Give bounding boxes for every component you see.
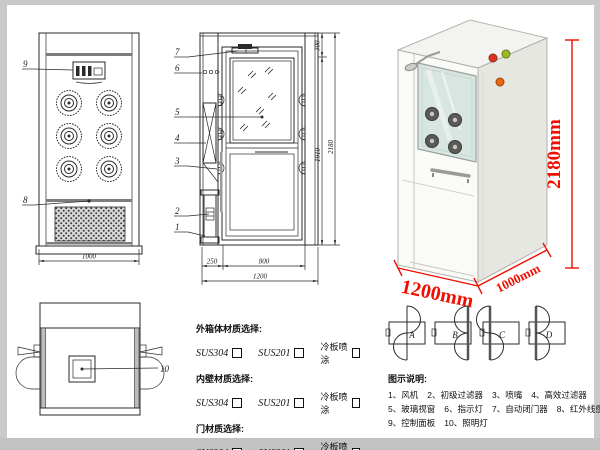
legend-item: 5、玻璃视窗 bbox=[388, 402, 435, 416]
frame-border-top bbox=[0, 0, 600, 5]
orange-button bbox=[496, 78, 504, 86]
fan-unit bbox=[201, 152, 223, 243]
door-track bbox=[220, 152, 223, 212]
glass-door-3d bbox=[418, 63, 476, 162]
door-option-a-label: A bbox=[408, 330, 415, 340]
material-option-label: SUS304 bbox=[196, 348, 228, 359]
glass-hatch-marks bbox=[238, 67, 276, 131]
material-option-label: SUS201 bbox=[258, 398, 290, 409]
glass-window bbox=[230, 58, 294, 143]
door-option-b[interactable]: B bbox=[432, 306, 471, 360]
section-callouts: 7 6 5 4 3 2 1 bbox=[174, 47, 264, 236]
return-grille bbox=[46, 199, 132, 245]
callout-4-label: 4 bbox=[175, 133, 180, 143]
callout-1-label: 1 bbox=[175, 222, 180, 232]
door-option-c[interactable]: C bbox=[477, 306, 520, 360]
vertical-dimensions: 300 1910 2180 bbox=[314, 33, 341, 245]
legend-item: 6、指示灯 bbox=[444, 402, 483, 416]
door-option-d[interactable]: D bbox=[526, 306, 565, 360]
legend-item: 9、控制面板 bbox=[388, 416, 435, 430]
nozzles-front bbox=[57, 91, 122, 182]
callout-2-label: 2 bbox=[175, 206, 180, 216]
legend-title: 图示说明: bbox=[388, 372, 588, 385]
door-option-a[interactable]: A bbox=[386, 306, 425, 360]
legend-item: 8、红外线感应器 bbox=[557, 402, 600, 416]
product-photo-3d: 2180mm 1200mm 1000mm bbox=[380, 10, 595, 310]
material-checkbox[interactable] bbox=[232, 348, 242, 358]
callout-9-label: 9 bbox=[23, 59, 28, 69]
callout-9: 9 bbox=[22, 59, 73, 70]
material-options-row: SUS304 SUS201 冷板喷涂 bbox=[196, 340, 372, 366]
control-panel bbox=[73, 62, 105, 84]
door-closer bbox=[232, 44, 258, 53]
material-section-title: 外箱体材质选择: bbox=[196, 322, 372, 335]
material-checkbox[interactable] bbox=[232, 398, 242, 408]
door-option-b-label: B bbox=[452, 330, 458, 340]
legend: 图示说明: 1、风机 2、初级过滤器 3、喷嘴 4、高效过滤器 5、玻璃视窗 6… bbox=[388, 372, 588, 430]
legend-item: 7、自动闭门器 bbox=[492, 402, 548, 416]
legend-item: 1、风机 bbox=[388, 388, 418, 402]
legend-item: 10、照明灯 bbox=[444, 416, 487, 430]
indicator-lights bbox=[203, 70, 218, 73]
top-view-drawing: 10 bbox=[10, 295, 190, 435]
material-option-label: SUS201 bbox=[258, 348, 290, 359]
callout-5-label: 5 bbox=[175, 107, 180, 117]
door-swing-options: A B C D bbox=[383, 300, 583, 366]
legend-item: 2、初级过滤器 bbox=[427, 388, 483, 402]
green-button bbox=[502, 50, 510, 58]
material-selection: 外箱体材质选择: SUS304 SUS201 冷板喷涂 内壁材质选择: SUS3… bbox=[196, 316, 372, 450]
material-options-row: SUS304 SUS201 冷板喷涂 bbox=[196, 440, 372, 450]
legend-row: 9、控制面板 10、照明灯 bbox=[388, 416, 588, 430]
section-view-drawing: 7 6 5 4 3 2 1 300 1910 2180 bbox=[172, 22, 358, 292]
door-option-c-label: C bbox=[499, 330, 506, 340]
dim-2180-label: 2180 bbox=[327, 140, 335, 155]
legend-row: 1、风机 2、初级过滤器 3、喷嘴 4、高效过滤器 bbox=[388, 388, 588, 402]
material-section-title: 门材质选择: bbox=[196, 422, 372, 435]
dim-250-label: 250 bbox=[207, 258, 218, 266]
material-options-row: SUS304 SUS201 冷板喷涂 bbox=[196, 390, 372, 416]
dim-1200-label: 1200 bbox=[253, 273, 268, 281]
frame-border-left bbox=[0, 0, 7, 450]
spec-sheet: 9 8 1000 bbox=[0, 0, 600, 450]
dim-800-label: 800 bbox=[259, 258, 270, 266]
legend-item: 3、喷嘴 bbox=[492, 388, 522, 402]
legend-item: 4、高效过滤器 bbox=[531, 388, 587, 402]
top-view-body bbox=[40, 303, 140, 415]
door-option-d-label: D bbox=[545, 330, 553, 340]
legend-row: 5、玻璃视窗 6、指示灯 7、自动闭门器 8、红外线感应器 bbox=[388, 402, 588, 416]
material-checkbox[interactable] bbox=[352, 398, 360, 408]
material-option-label: SUS304 bbox=[196, 398, 228, 409]
callout-10: 10 bbox=[81, 364, 170, 374]
dim-1000-label: 1000 bbox=[82, 253, 97, 261]
side-nozzles bbox=[218, 94, 305, 174]
material-checkbox[interactable] bbox=[352, 348, 360, 358]
callout-8-label: 8 bbox=[23, 195, 28, 205]
material-checkbox[interactable] bbox=[294, 348, 304, 358]
dim-300-label: 300 bbox=[314, 40, 322, 52]
hepa-filter bbox=[203, 103, 218, 182]
dim-1910-label: 1910 bbox=[314, 148, 322, 163]
callout-6-label: 6 bbox=[175, 63, 180, 73]
material-checkbox[interactable] bbox=[294, 398, 304, 408]
callout-7-label: 7 bbox=[175, 47, 180, 57]
material-option-label: 冷板喷涂 bbox=[320, 340, 347, 366]
dimension-1000: 1000 bbox=[39, 249, 139, 265]
front-view-drawing: 9 8 1000 bbox=[20, 22, 172, 274]
material-section-title: 内壁材质选择: bbox=[196, 372, 372, 385]
material-option-label: 冷板喷涂 bbox=[320, 390, 347, 416]
material-option-label: 冷板喷涂 bbox=[320, 440, 347, 450]
door-assembly bbox=[222, 44, 302, 240]
red-button bbox=[489, 54, 497, 62]
height-dim-label: 2180mm bbox=[544, 119, 565, 189]
callout-10-label: 10 bbox=[160, 364, 170, 374]
horizontal-dimensions: 250 800 1200 bbox=[202, 245, 318, 285]
callout-3-label: 3 bbox=[174, 156, 180, 166]
